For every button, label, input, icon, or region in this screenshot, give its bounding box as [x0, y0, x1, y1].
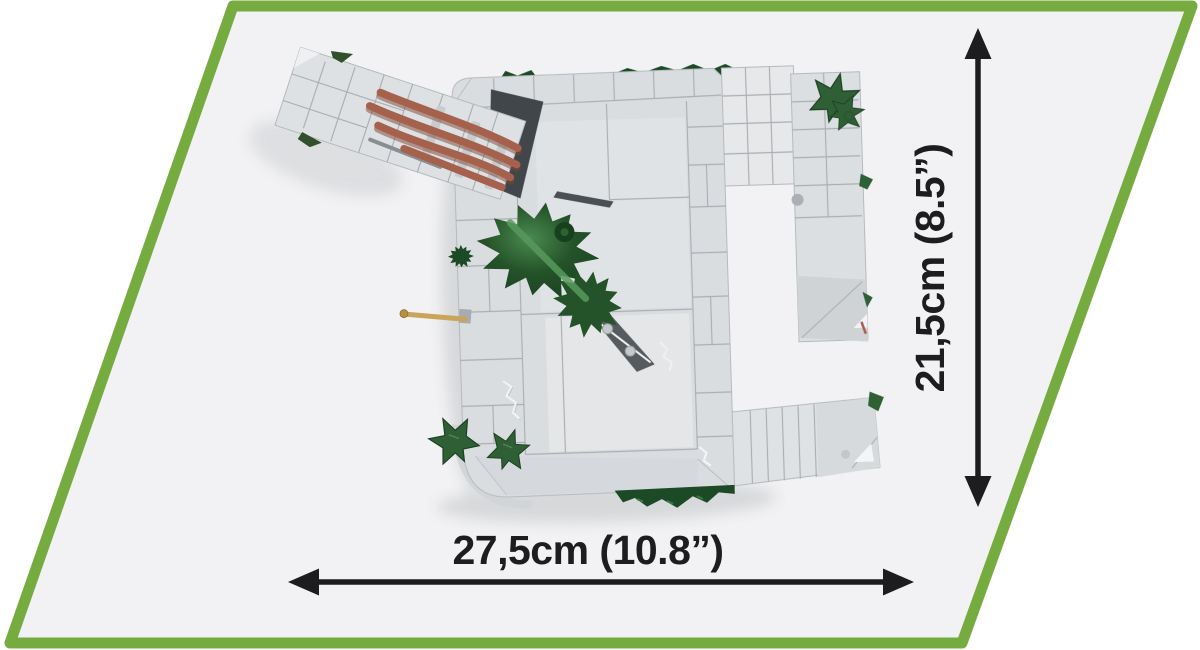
diagram-canvas: 27,5cm (10.8”) 21,5cm (8.5”)	[0, 0, 1200, 650]
width-dimension-label: 27,5cm (10.8”)	[452, 527, 723, 573]
product-dimension-diagram: 27,5cm (10.8”) 21,5cm (8.5”)	[0, 0, 1200, 650]
height-dimension-label: 21,5cm (8.5”)	[907, 144, 953, 393]
bunker-top-arm	[721, 66, 797, 186]
